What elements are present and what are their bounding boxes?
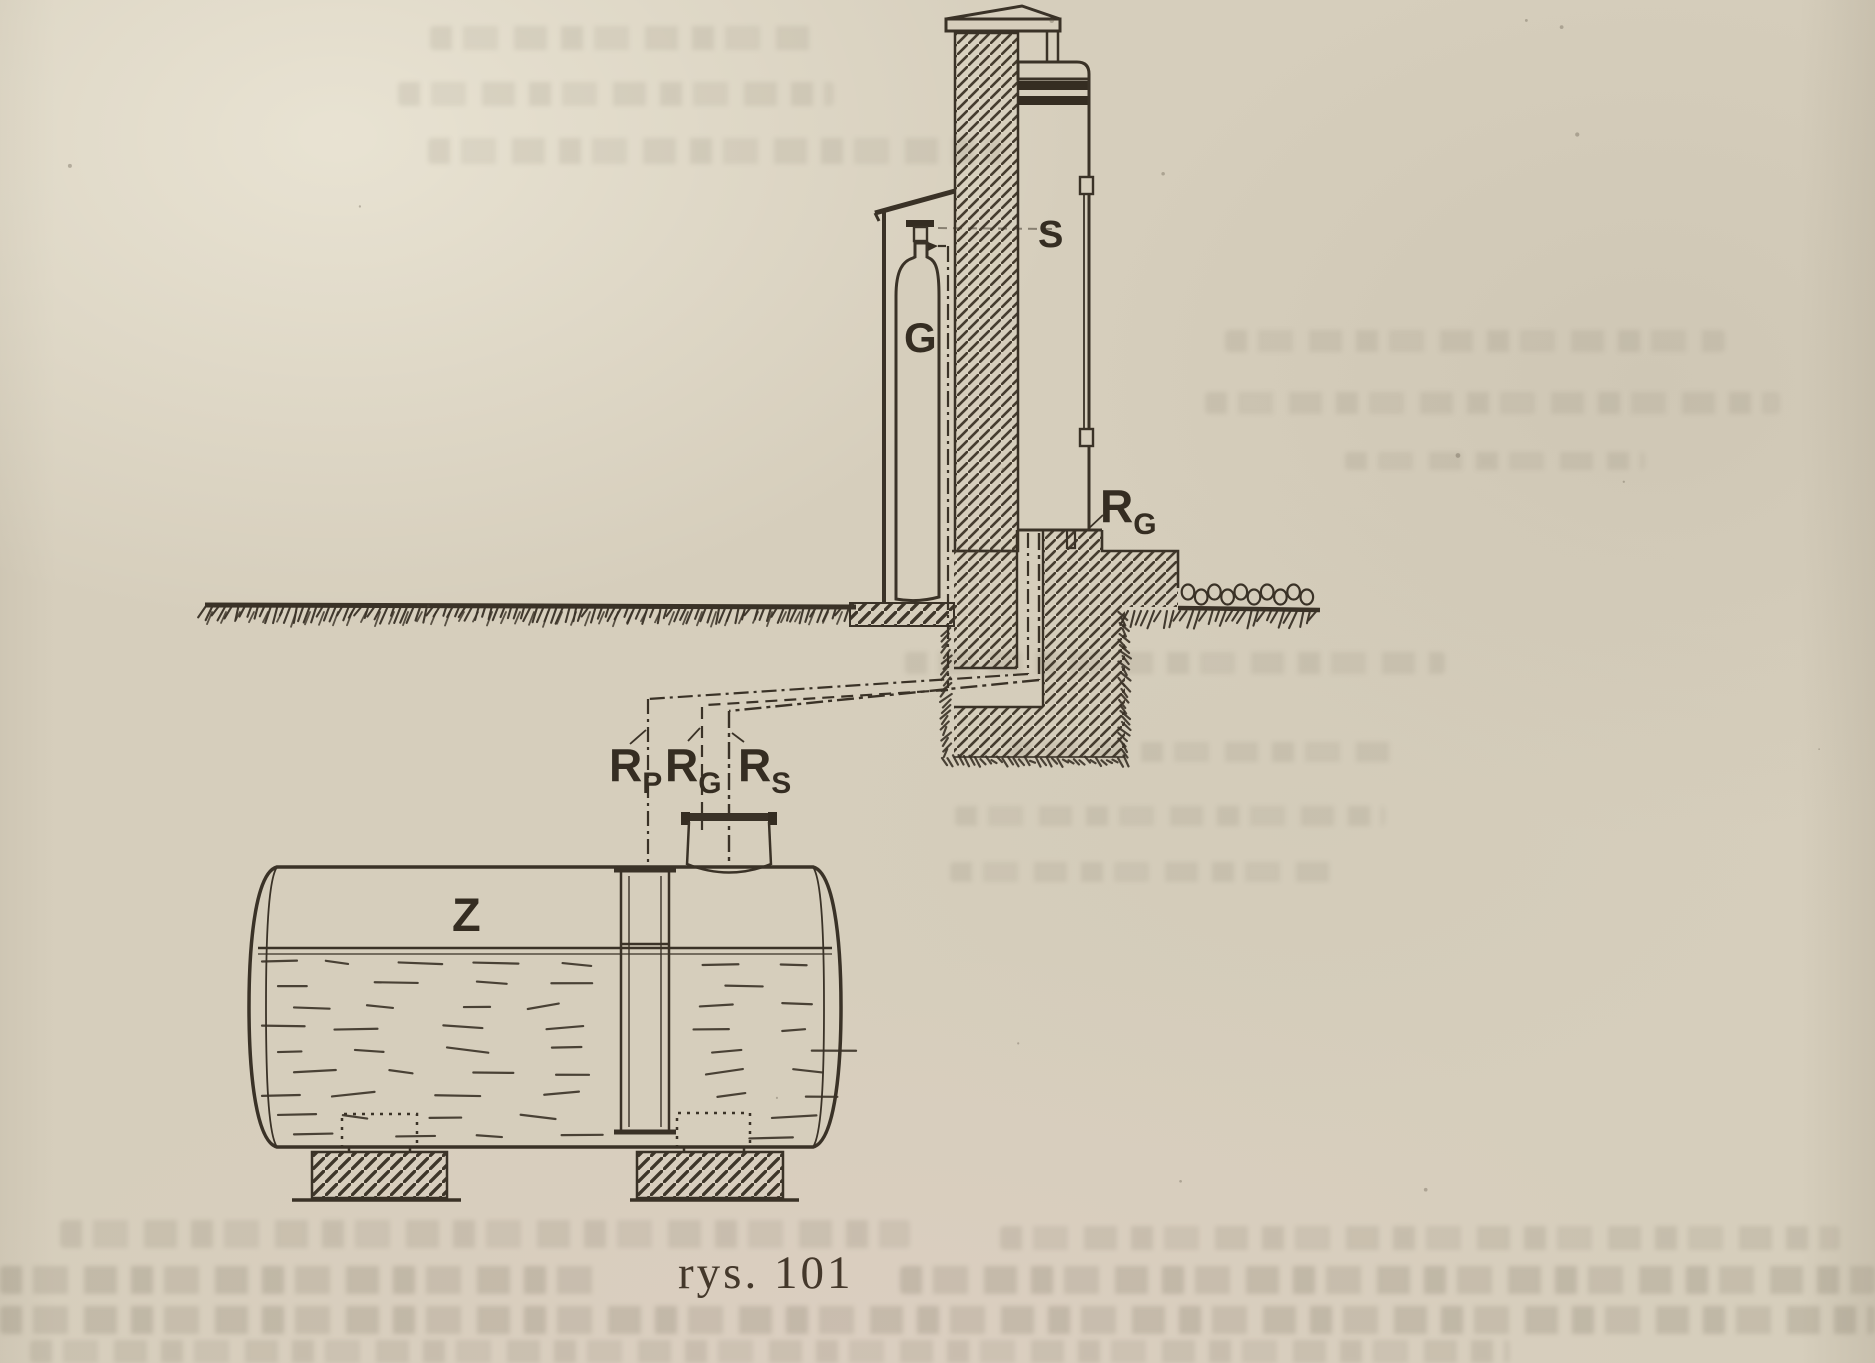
wall-cap-peak <box>946 6 1060 19</box>
label-main: R <box>1100 480 1133 532</box>
gas-cylinder-label: G <box>904 314 937 361</box>
label-main: R <box>609 739 642 791</box>
dispenser-column <box>1018 31 1093 530</box>
technical-figure: S G Z RG RP RG RS rys. 101 <box>0 0 1875 1363</box>
wall-cap-band <box>946 19 1060 31</box>
cobblestone-paving <box>1182 585 1313 605</box>
foundation <box>954 530 1178 757</box>
shed-roof <box>875 191 955 213</box>
saddle-support <box>312 1152 447 1198</box>
pipe-gas-wall-label: RG <box>1100 480 1157 541</box>
scanned-book-page: S G Z RG RP RG RS rys. 101 <box>0 0 1875 1363</box>
figure-caption: rys. 101 <box>678 1247 853 1299</box>
label-main: R <box>665 739 698 791</box>
saddle-support <box>637 1152 783 1198</box>
grass-hatching <box>1120 611 1316 629</box>
label-subscript: G <box>698 767 721 800</box>
pit-edge-left <box>940 628 952 757</box>
cylinder-valve <box>914 227 927 241</box>
label-subscript: P <box>642 767 662 800</box>
ground-surface-left <box>198 605 856 627</box>
pipe-gas-label: RG <box>665 739 722 800</box>
pipe-gauge-label: RP <box>609 739 662 800</box>
dispenser-label: S <box>1038 214 1063 256</box>
label-subscript: S <box>771 767 791 800</box>
shed-floor-slab <box>850 603 954 626</box>
label-main: R <box>738 739 771 791</box>
dispenser-top <box>1018 62 1089 79</box>
door-hinge <box>1080 177 1093 194</box>
door-hinge <box>1080 429 1093 446</box>
valve-outlet <box>928 242 938 251</box>
pipe-suction-label: RS <box>738 739 791 800</box>
tank-supports <box>292 1152 799 1200</box>
dispenser-band <box>1018 96 1089 105</box>
tank-label: Z <box>452 888 481 941</box>
gas-cylinder-body <box>896 243 939 601</box>
storage-tank <box>249 812 856 1154</box>
label-subscript: G <box>1133 508 1156 541</box>
dispenser-band <box>1018 81 1089 90</box>
